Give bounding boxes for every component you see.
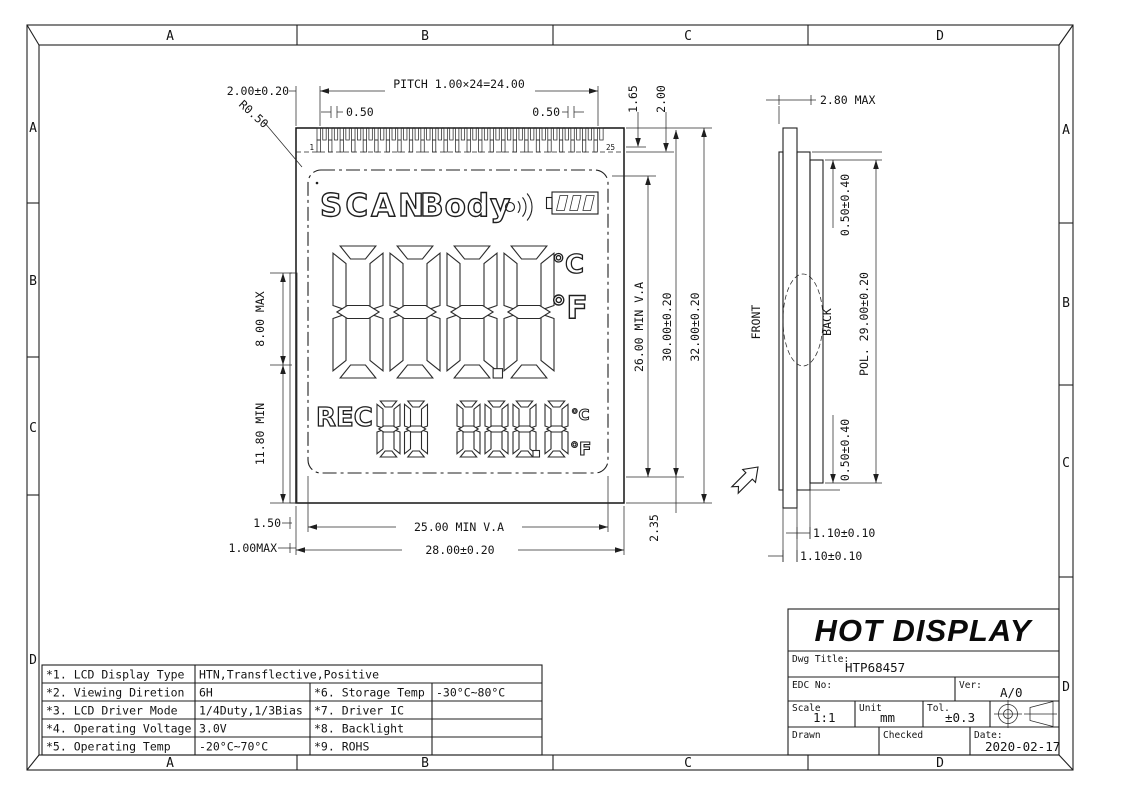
zone-right-b: B [1062, 296, 1070, 311]
dim-outline-width: 28.00±0.20 [425, 543, 494, 557]
zone-bottom-d: D [936, 756, 944, 771]
projection-symbol-icon [994, 700, 1057, 728]
dim-30-00: 30.00±0.20 [660, 292, 674, 361]
zone-top-a: A [166, 29, 174, 44]
dim-1-65: 1.65 [626, 85, 640, 113]
dim-gap-bottom: 0.50±0.40 [838, 419, 852, 481]
lcd-scan-label: SCAN [320, 188, 427, 224]
drawing-sheet: A B C D A B C D A B C D A B C D 1 25 SCA… [0, 0, 1123, 794]
spec-row2-label: *2. Viewing Diretion [46, 686, 184, 700]
zone-left-c: C [29, 421, 37, 436]
dim-polarizer-length: POL. 29.00±0.20 [857, 272, 871, 376]
main-digits-7seg [333, 246, 554, 378]
company-name: HOT DISPLAY [814, 613, 1033, 648]
dwg-title-value: HTP68457 [845, 660, 905, 675]
unit-fahrenheit-large: °F [551, 290, 588, 326]
zone-top-d: D [936, 29, 944, 44]
spec-row4-value: 3.0V [199, 722, 227, 736]
sub-digits-left-7seg [377, 401, 428, 457]
spec-row4-label2: *8. Backlight [314, 722, 404, 736]
spec-row1-label: *1. LCD Display Type [46, 668, 185, 682]
zone-top-b: B [421, 29, 429, 44]
dim-pin-width-left: 0.50 [346, 105, 374, 119]
tol-value: ±0.3 [945, 710, 975, 725]
zone-bottom-c: C [684, 756, 692, 771]
front-label: FRONT [749, 305, 763, 340]
date-value: 2020-02-17 [985, 739, 1060, 754]
back-glass [797, 152, 810, 490]
zone-top-c: C [684, 29, 692, 44]
spec-row3-label2: *7. Driver IC [314, 704, 404, 718]
drawn-label: Drawn [792, 730, 821, 741]
dim-11-80-min: 11.80 MIN [253, 403, 267, 465]
title-block: HOT DISPLAY Dwg Title: HTP68457 EDC No: … [788, 609, 1060, 755]
dim-pin-width-right: 0.50 [532, 105, 560, 119]
detail-circle [783, 274, 823, 366]
unit-fahrenheit-small: °F [570, 439, 591, 460]
spec-row5-label: *5. Operating Temp [46, 740, 171, 754]
dim-32-00: 32.00±0.20 [688, 292, 702, 361]
dim-8-00-max: 8.00 MAX [253, 291, 267, 346]
dim-radius: R0.50 [236, 97, 271, 131]
zone-left-a: A [29, 121, 37, 136]
dim-pitch: PITCH 1.00×24=24.00 [393, 77, 525, 91]
lcd-display-content: SCAN Body °C °F REC °C °F [316, 188, 598, 460]
rec-label: REC [316, 403, 373, 433]
side-view: FRONT BACK [732, 128, 834, 508]
dim-gap-top: 0.50±0.40 [838, 174, 852, 236]
dim-va-width: 25.00 MIN V.A [414, 520, 504, 534]
spec-row2-label2: *6. Storage Temp [314, 686, 425, 700]
zone-left-b: B [29, 274, 37, 289]
front-polarizer [779, 152, 783, 490]
pin-number-first: 1 [309, 143, 314, 152]
lcd-body-label: Body [420, 188, 511, 224]
zone-left-d: D [29, 653, 37, 668]
spec-row5-value: -20°C~70°C [199, 740, 268, 754]
checked-label: Checked [883, 730, 923, 741]
scale-value: 1:1 [813, 710, 836, 725]
unit-celsius-small: °C [571, 406, 590, 424]
spec-row3-value: 1/4Duty,1/3Bias [199, 704, 303, 718]
zone-bottom-a: A [166, 756, 174, 771]
zone-right-d: D [1062, 680, 1070, 695]
spec-row1-value: HTN,Transflective,Positive [199, 668, 379, 682]
zone-right-c: C [1062, 456, 1070, 471]
zone-right-a: A [1062, 123, 1070, 138]
spec-row5-label2: *9. ROHS [314, 740, 369, 754]
dim-va-height: 26.00 MIN V.A [632, 282, 646, 372]
dim-2-80-max: 2.80 MAX [820, 93, 875, 107]
version-value: A/0 [1000, 685, 1023, 700]
dim-2-35: 2.35 [647, 514, 661, 542]
sub-digits-right-7seg [457, 401, 568, 457]
pin1-marker-dot [316, 182, 319, 185]
front-glass [783, 128, 797, 508]
battery-3-cells-icon [547, 192, 599, 214]
dim-1-50: 1.50 [253, 516, 281, 530]
view-direction-arrow-icon [732, 467, 758, 493]
pin-number-last: 25 [606, 143, 615, 152]
spec-row2-value: 6H [199, 686, 213, 700]
version-label: Ver: [959, 680, 982, 691]
dim-edge: 2.00±0.20 [227, 84, 289, 98]
dim-1-10-b: 1.10±0.10 [800, 549, 862, 563]
spec-table: *1. LCD Display Type HTN,Transflective,P… [42, 665, 542, 755]
dim-2-00: 2.00 [654, 85, 668, 113]
spec-row2-value2: -30°C~80°C [436, 686, 505, 700]
spec-row3-label: *3. LCD Driver Mode [46, 704, 178, 718]
pin-comb [317, 128, 603, 152]
edc-no-label: EDC No: [792, 680, 832, 691]
drawing-canvas: A B C D A B C D A B C D A B C D 1 25 SCA… [0, 0, 1123, 794]
dwg-title-label: Dwg Title: [792, 654, 849, 665]
border-frame: A B C D A B C D A B C D A B C D [27, 25, 1073, 771]
dim-1-10-a: 1.10±0.10 [813, 526, 875, 540]
unit-value: mm [880, 710, 895, 725]
zone-bottom-b: B [421, 756, 429, 771]
side-dimension-texts: 2.80 MAX 0.50±0.40 POL. 29.00±0.20 0.50±… [800, 93, 875, 563]
spec-row4-label: *4. Operating Voltage [46, 722, 191, 736]
back-label: BACK [820, 308, 834, 336]
unit-celsius-large: °C [552, 250, 584, 280]
dim-1-00-max: 1.00MAX [229, 541, 278, 555]
unit-label: Unit [859, 703, 882, 714]
